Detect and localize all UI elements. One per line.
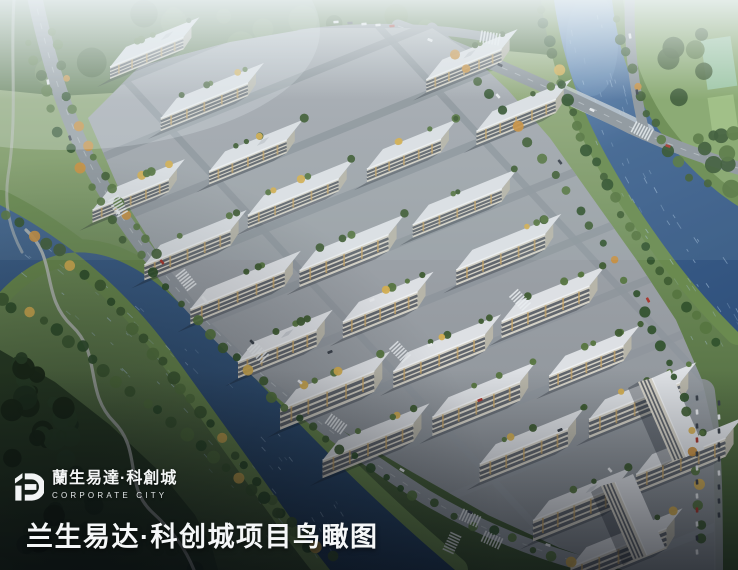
brand-name-en: CORPORATE CITY	[52, 491, 177, 500]
aerial-render-image: 蘭生易達·科創城 CORPORATE CITY 兰生易达·科创城项目鸟瞰图	[0, 0, 738, 570]
logo-mark-icon	[14, 471, 44, 503]
caption-title: 兰生易达·科创城项目鸟瞰图	[26, 515, 379, 554]
brand-name-cn: 蘭生易達·科創城	[52, 471, 177, 488]
brand-logo: 蘭生易達·科創城 CORPORATE CITY	[14, 471, 177, 503]
